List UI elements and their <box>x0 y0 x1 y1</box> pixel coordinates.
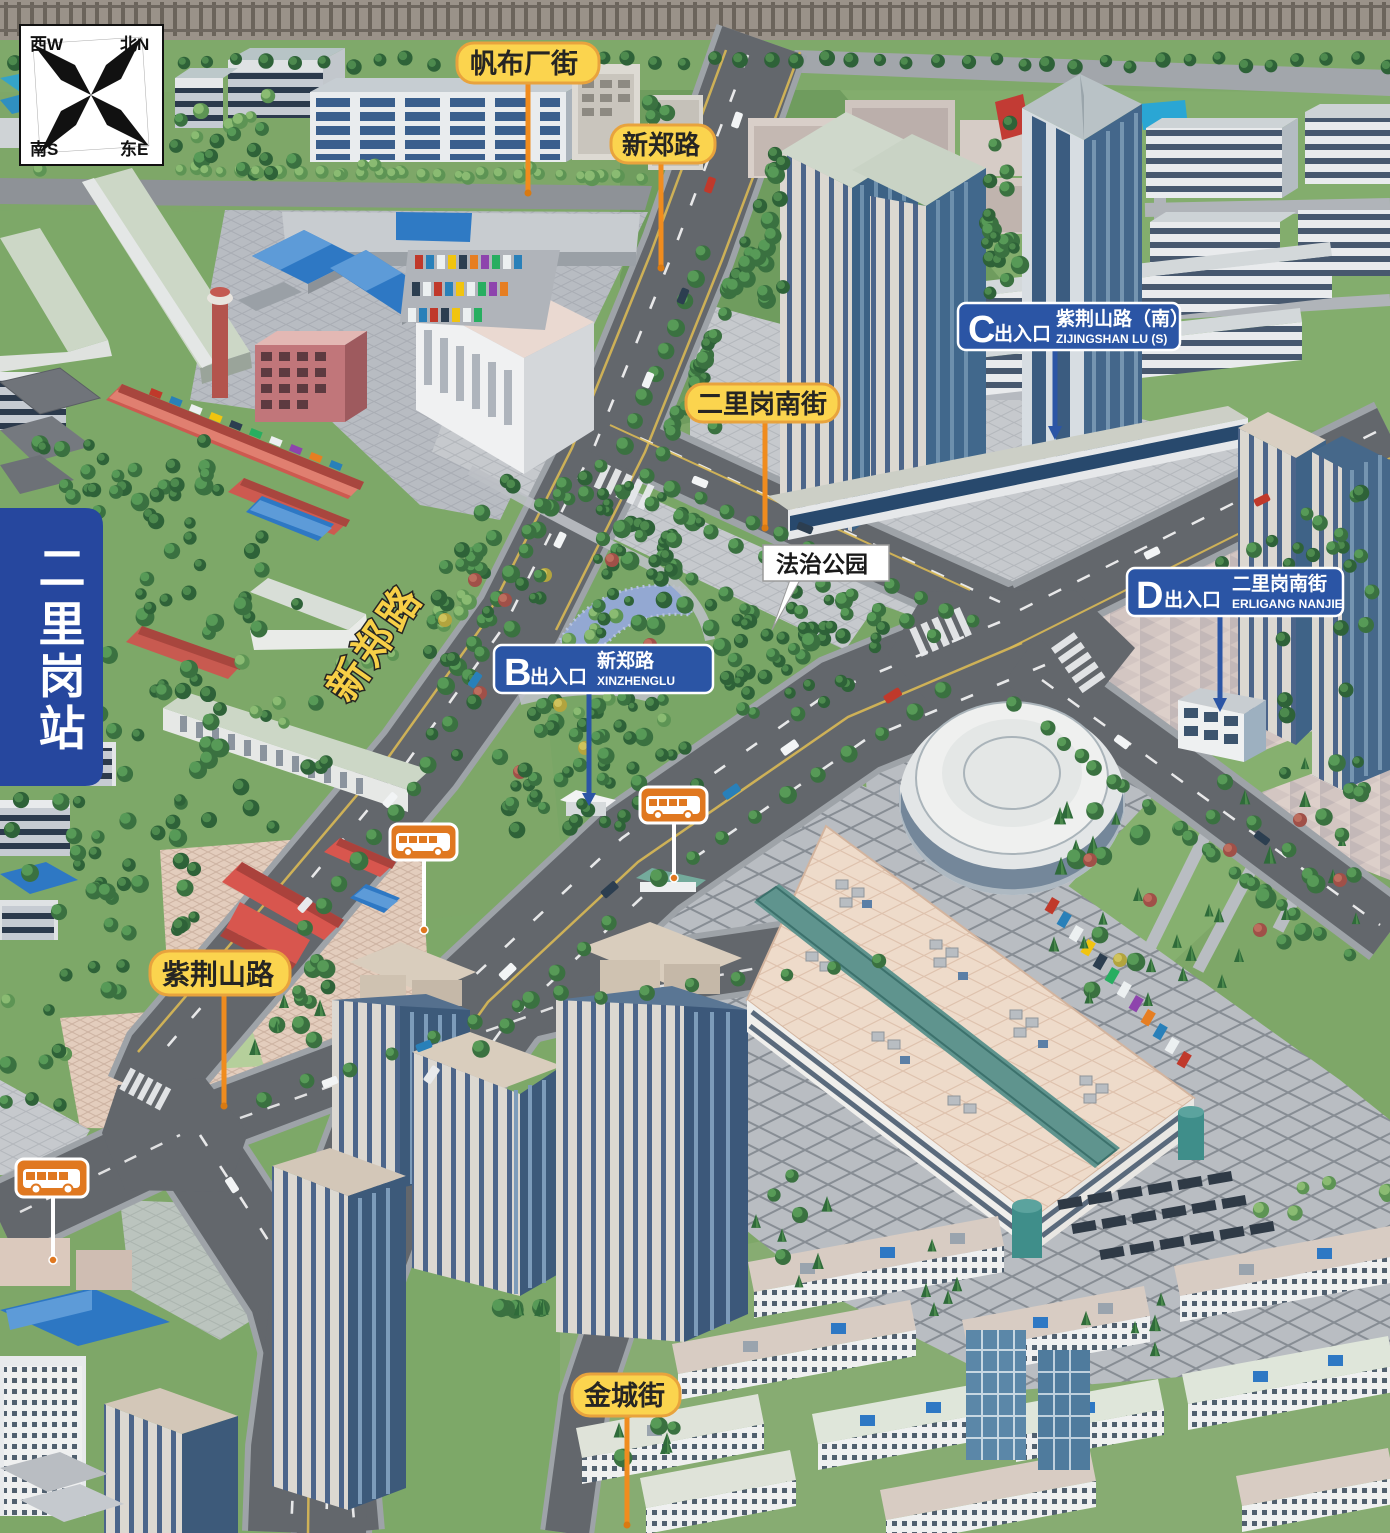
svg-text:二: 二 <box>39 542 86 595</box>
svg-text:新郑路: 新郑路 <box>622 130 701 160</box>
svg-text:ZIJINGSHAN LU (S): ZIJINGSHAN LU (S) <box>1056 332 1167 346</box>
svg-text:法治公园: 法治公园 <box>776 551 868 577</box>
svg-text:B: B <box>504 652 531 694</box>
svg-text:帆布厂街: 帆布厂街 <box>470 49 578 79</box>
svg-text:ERLIGANG NANJIE: ERLIGANG NANJIE <box>1232 597 1343 611</box>
svg-text:北N: 北N <box>120 35 149 54</box>
svg-text:D: D <box>1136 575 1163 617</box>
svg-text:紫荆山路（南）: 紫荆山路（南） <box>1056 307 1189 330</box>
svg-text:二里岗南街: 二里岗南街 <box>1232 572 1327 595</box>
svg-text:新郑路: 新郑路 <box>597 649 655 672</box>
svg-text:出入口: 出入口 <box>530 665 587 688</box>
svg-text:出入口: 出入口 <box>1164 588 1221 611</box>
svg-text:XINZHENGLU: XINZHENGLU <box>597 674 675 688</box>
svg-text:出入口: 出入口 <box>994 322 1051 345</box>
svg-text:南S: 南S <box>30 139 58 159</box>
svg-text:里: 里 <box>39 598 86 651</box>
svg-text:C: C <box>968 309 995 351</box>
svg-text:西W: 西W <box>30 35 64 54</box>
svg-text:二里岗南街: 二里岗南街 <box>697 389 827 419</box>
svg-text:紫荆山路: 紫荆山路 <box>162 959 275 990</box>
svg-text:岗: 岗 <box>39 650 86 703</box>
svg-text:金城街: 金城街 <box>583 1380 665 1411</box>
svg-text:站: 站 <box>39 702 86 755</box>
svg-text:东E: 东E <box>120 139 148 159</box>
